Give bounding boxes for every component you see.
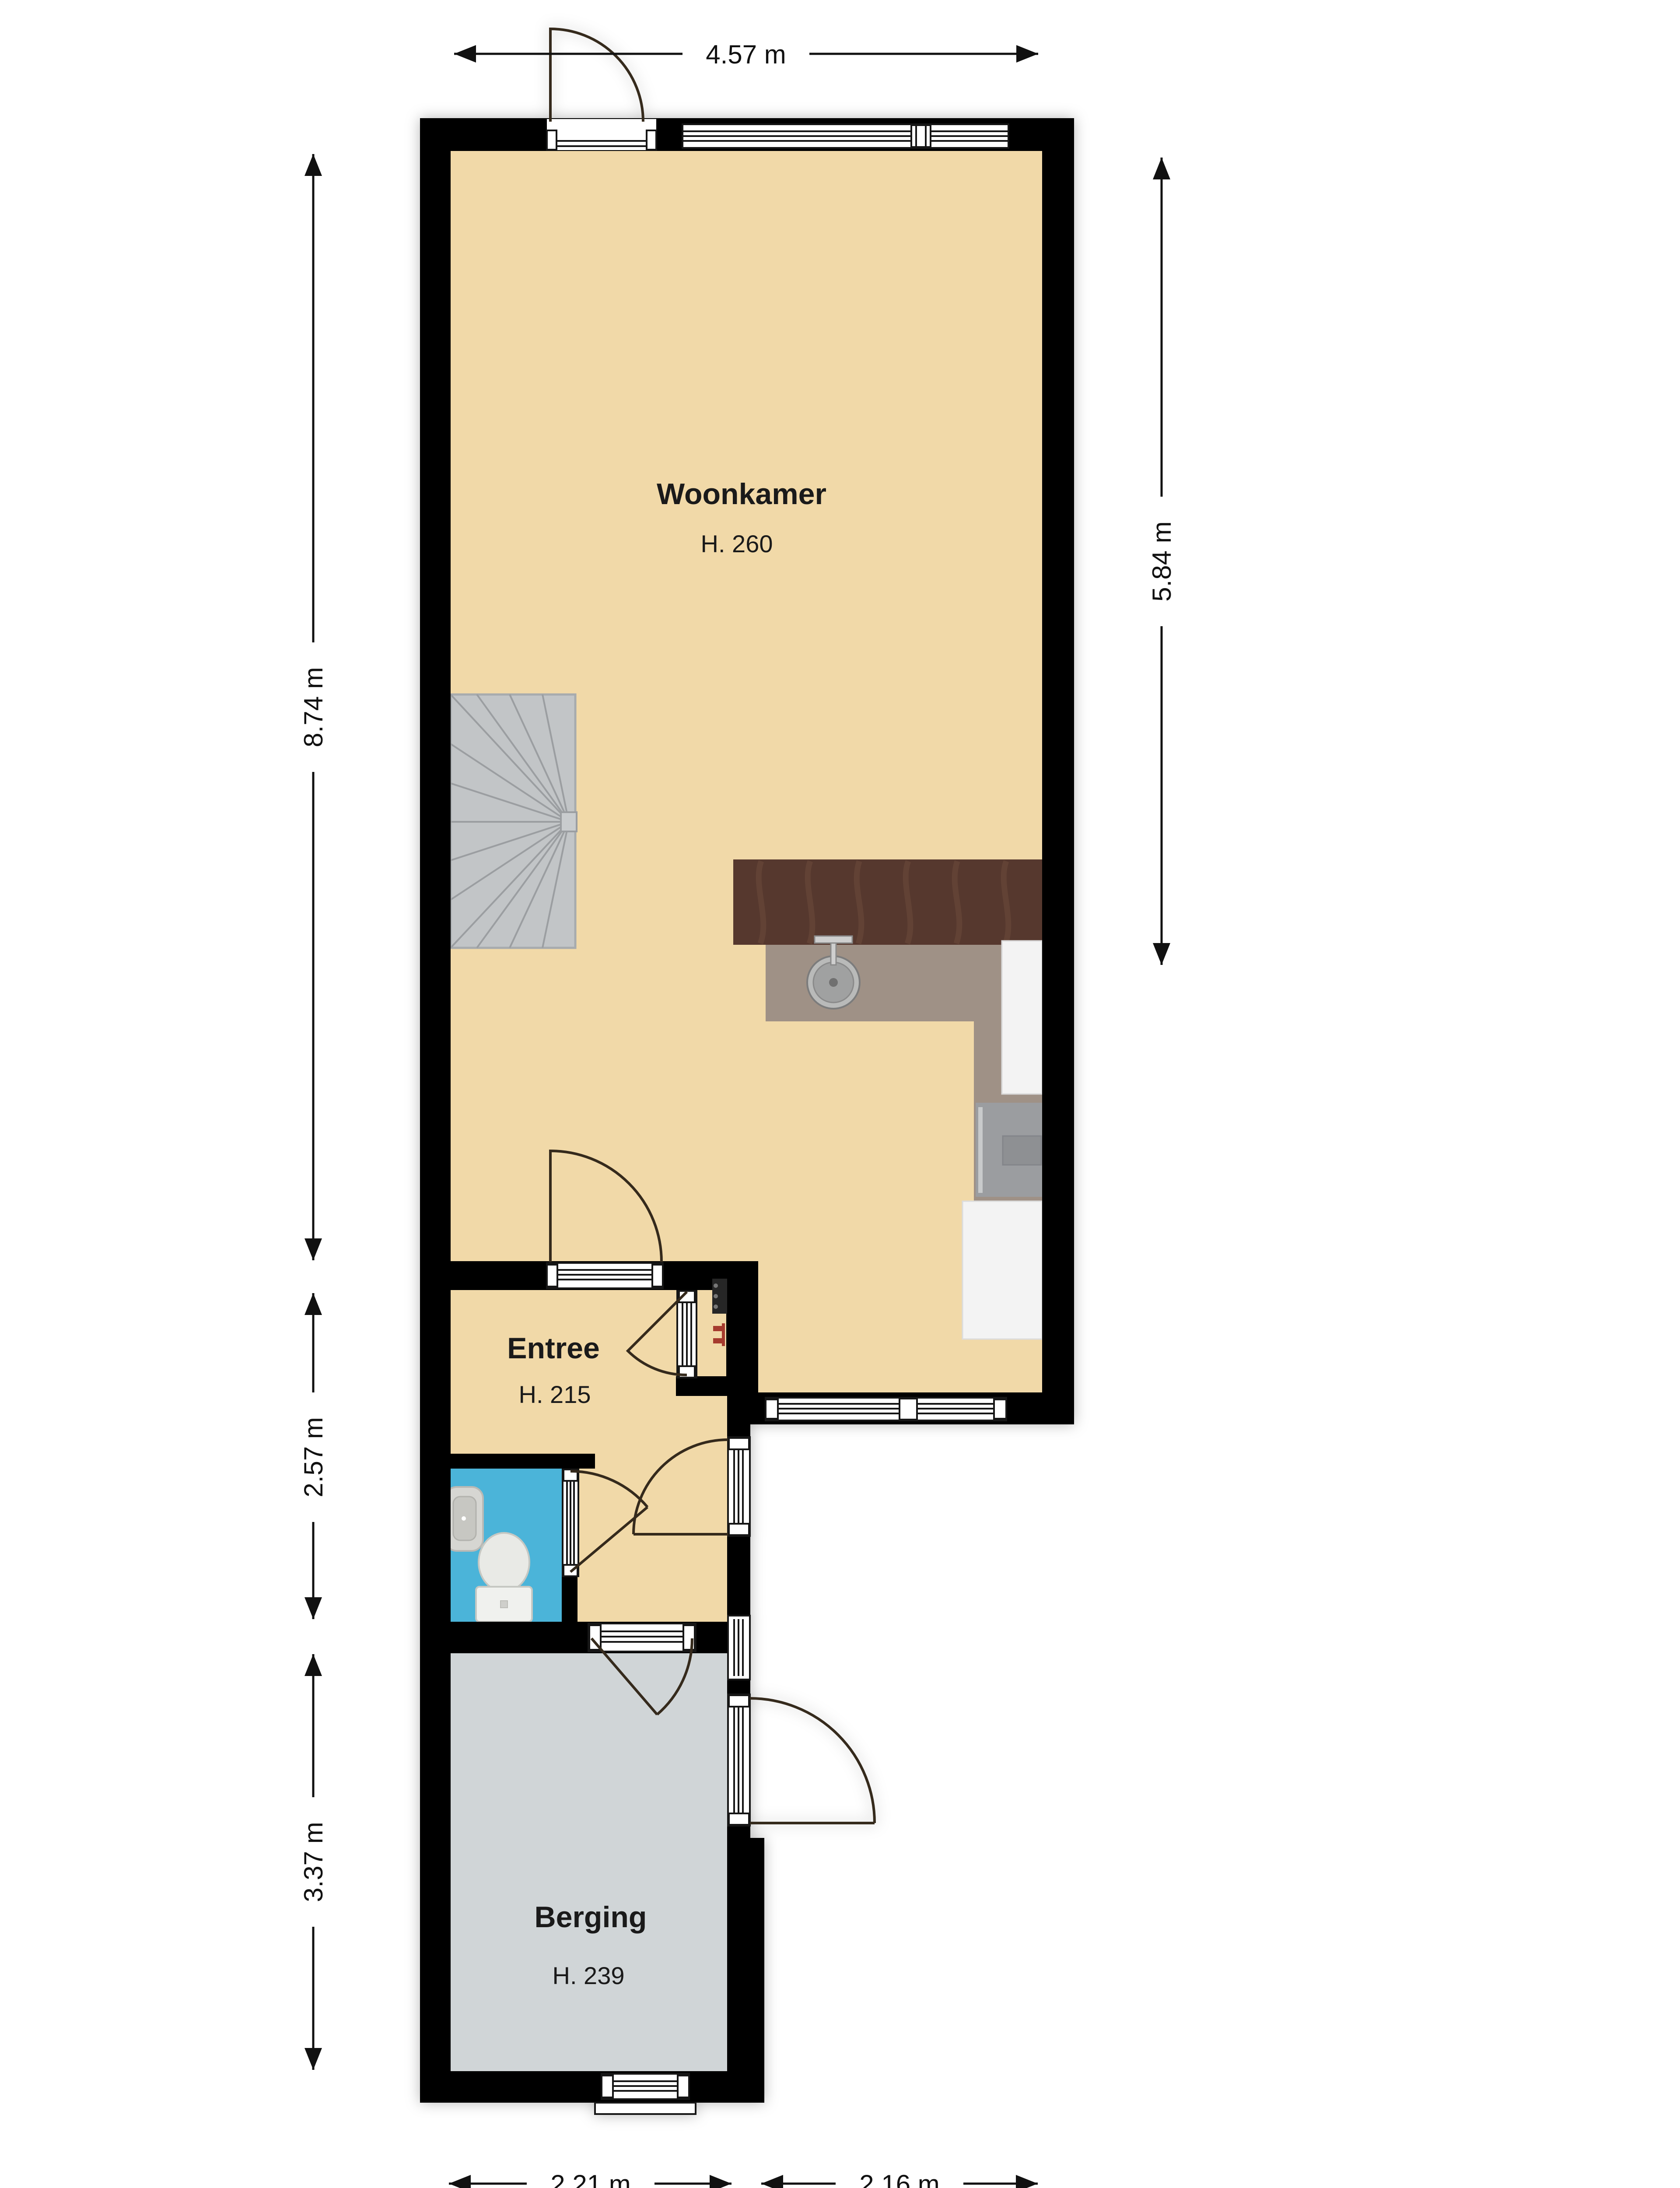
berging-label: Berging [535,1900,647,1934]
toilet-bowl [479,1533,529,1592]
berging-height: H. 239 [553,1962,625,1989]
dim-bottom-left: 2.21 m [550,2170,630,2188]
wall-berging-right [727,1838,764,2103]
exterior-backdoor-frame [728,1694,750,1826]
dim-right: 5.84 m [1147,521,1176,601]
building [420,29,1074,2114]
kitchen-appliance [976,1103,1042,1197]
dim-top: 4.57 m [706,40,786,69]
window-berging-bottom [595,2074,696,2114]
wall-berging-bottom [420,2071,764,2103]
wall-right [1042,118,1074,1424]
kitchen-cabinet-white [1002,941,1042,1094]
exterior-backdoor-swing [750,1698,875,1823]
entree-label: Entree [507,1332,600,1365]
passage-window [728,1616,750,1680]
entree-height: H. 215 [519,1381,591,1408]
window-top [682,124,1008,148]
woonkamer-height: H. 260 [701,530,773,558]
stairs-newel [561,812,577,831]
front-door-swing [550,29,643,122]
window-woonkamer-bottom [766,1398,1006,1420]
meterkast-door-frame [677,1291,696,1378]
hall-backdoor-frame [728,1437,750,1536]
wall-left [420,118,451,2103]
staircase [451,694,577,948]
dim-left-middle: 2.57 m [299,1417,328,1497]
front-door-opening [547,119,656,150]
berging-door-frame [588,1623,696,1652]
kitchen-appliance-white [962,1201,1042,1339]
berging-floor [451,1653,728,2071]
wall-meterkast-bottom [676,1376,727,1396]
floor-plan: 4.57 m 8.74 m 2.57 m 3.37 m 5.84 m 2.21 … [0,0,1680,2188]
dim-left-upper: 8.74 m [299,667,328,747]
kitchen-bar [733,859,1042,945]
entree-door-opening [547,1263,663,1288]
wall-meterkast-right [726,1261,758,1396]
dim-bottom-right: 2.16 m [859,2170,939,2188]
dim-left-lower: 3.37 m [299,1822,328,1902]
woonkamer-label: Woonkamer [657,477,826,511]
toilet-door-frame [563,1469,578,1576]
